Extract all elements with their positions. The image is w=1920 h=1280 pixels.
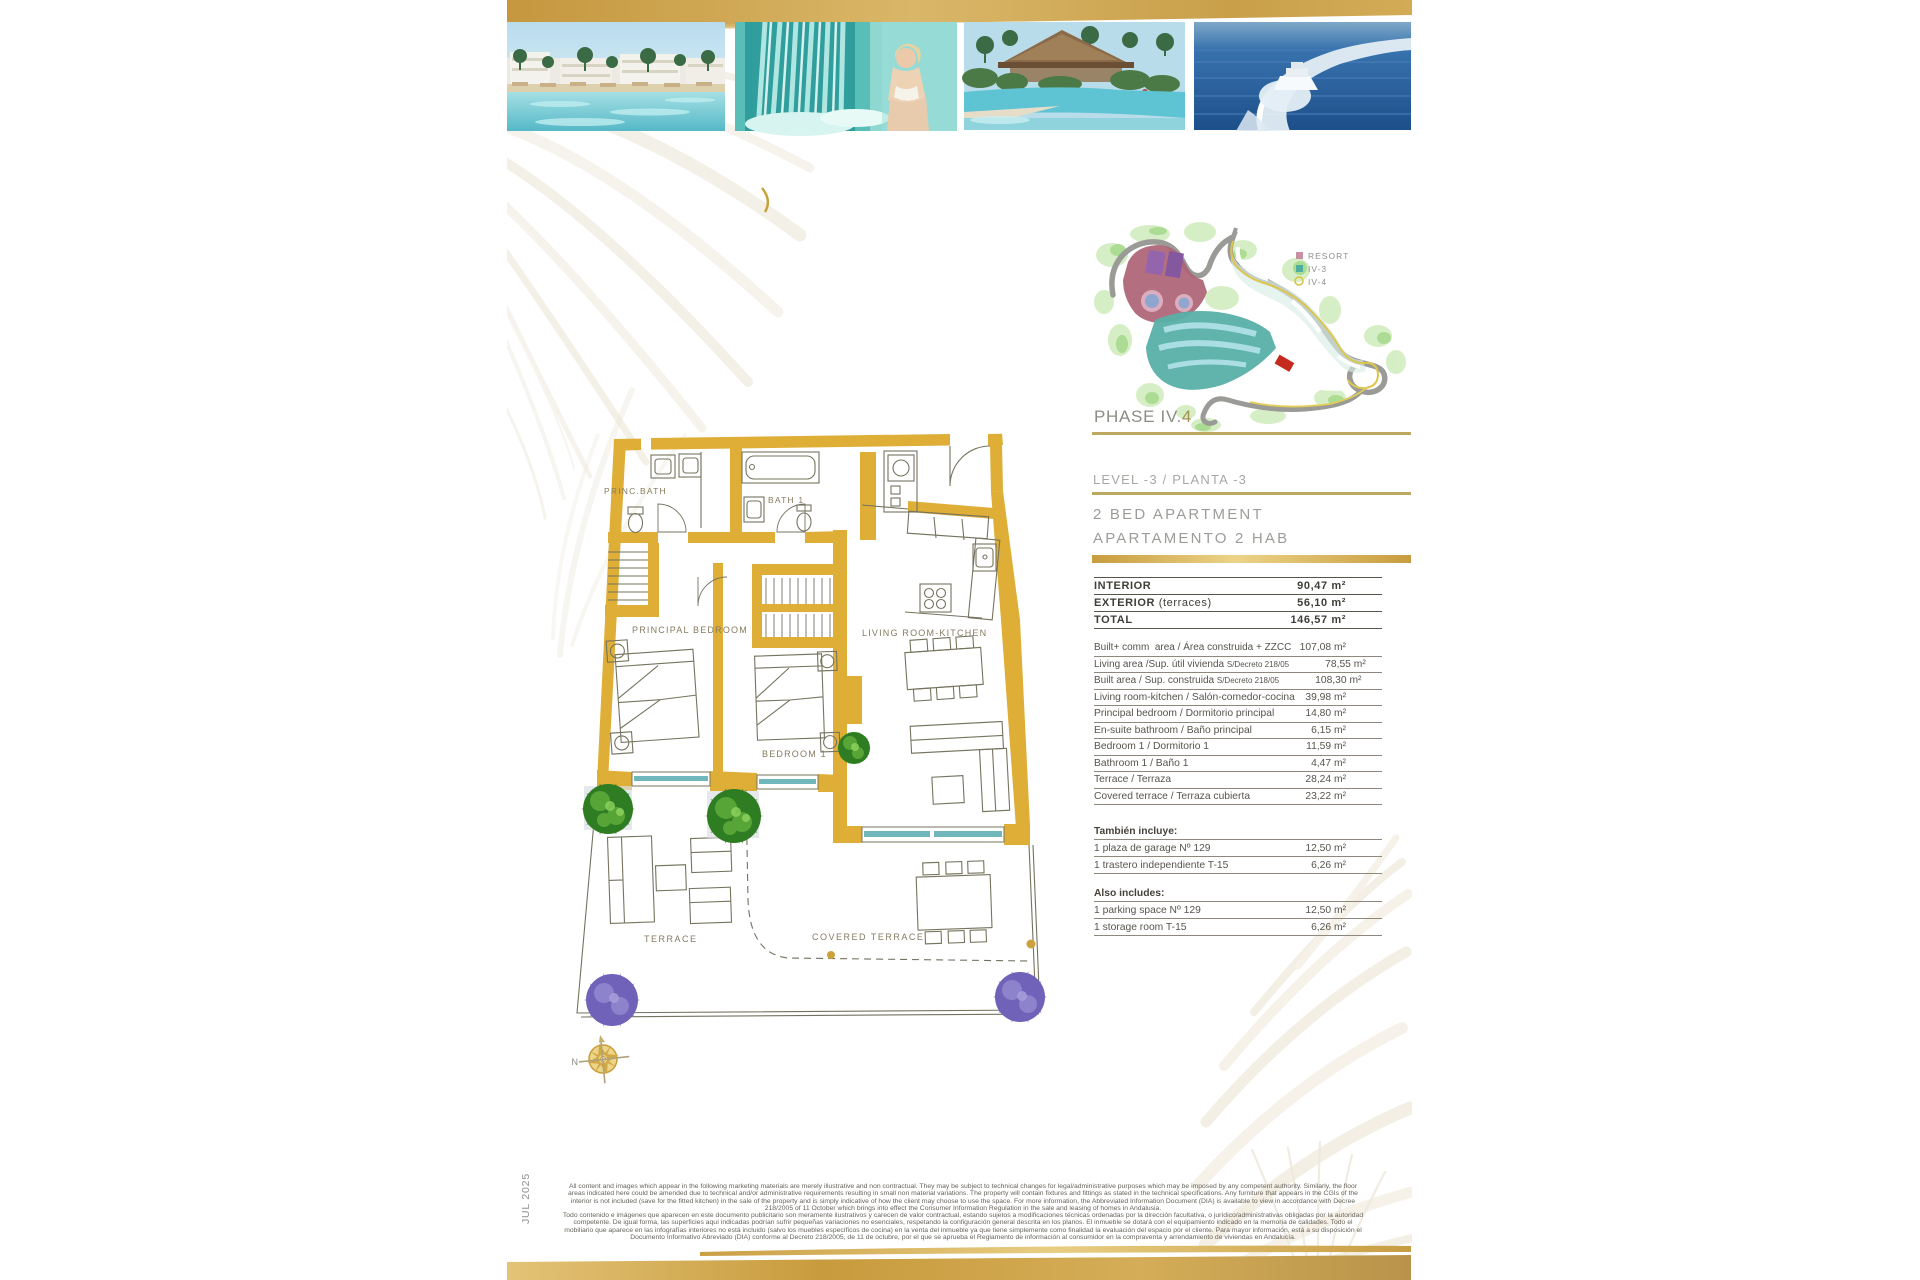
- svg-text:PRINC.BATH: PRINC.BATH: [604, 486, 667, 496]
- svg-text:BATH 1: BATH 1: [768, 495, 804, 505]
- svg-text:COVERED TERRACE: COVERED TERRACE: [812, 932, 924, 942]
- svg-text:TERRACE: TERRACE: [644, 934, 698, 944]
- svg-text:IV-4: IV-4: [1308, 277, 1327, 287]
- svg-text:PRINCIPAL BEDROOM: PRINCIPAL BEDROOM: [632, 625, 748, 635]
- svg-text:BEDROOM 1: BEDROOM 1: [762, 749, 827, 759]
- svg-text:LIVING ROOM-KITCHEN: LIVING ROOM-KITCHEN: [862, 628, 987, 638]
- svg-text:N: N: [571, 1057, 578, 1067]
- svg-text:IV-3: IV-3: [1308, 264, 1327, 274]
- svg-text:RESORT: RESORT: [1308, 251, 1349, 261]
